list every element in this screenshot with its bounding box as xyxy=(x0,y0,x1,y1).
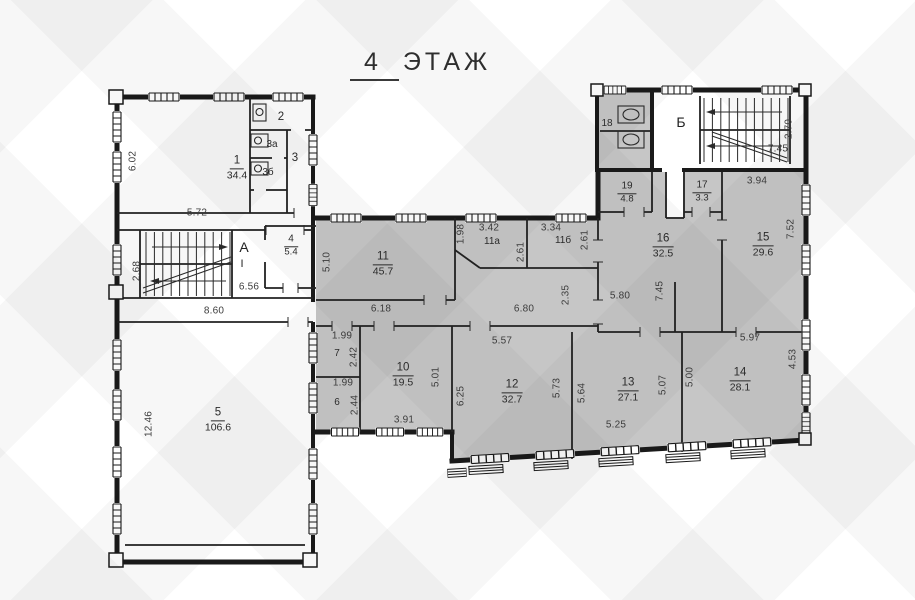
dim-label: 5.00 xyxy=(685,367,696,387)
dim-label: 5.25 xyxy=(606,420,626,431)
dim-label: 5.72 xyxy=(187,208,207,219)
dim-label: 7.45 xyxy=(768,144,788,155)
dim-label: 2.44 xyxy=(350,395,361,415)
dim-label: 2.68 xyxy=(132,261,143,281)
stair-a-label: А xyxy=(239,239,248,255)
dim-label: 3.42 xyxy=(479,223,499,234)
room-label-11a: 11а xyxy=(484,231,500,249)
room-label-18: 18 xyxy=(601,113,612,131)
room-label-6: 6 xyxy=(334,392,340,410)
room-label-10: 1019.5 xyxy=(393,357,414,388)
dim-label: 5.57 xyxy=(492,336,512,347)
dim-label: 6.02 xyxy=(128,151,139,171)
dim-label: 2.61 xyxy=(516,242,527,262)
stair-a-flight-mark: I xyxy=(240,258,243,270)
room-label-12: 1232.7 xyxy=(502,374,523,405)
floor-word: ЭТАЖ xyxy=(403,48,491,77)
dim-label: 5.97 xyxy=(740,333,760,344)
floor-number: 4 xyxy=(350,48,399,81)
dim-label: 5.01 xyxy=(431,367,442,387)
page-title: 4 ЭТАЖ xyxy=(350,48,491,81)
dim-label: 8.60 xyxy=(204,306,224,317)
dim-label: 2.42 xyxy=(349,347,360,367)
room-label-3a: 3а xyxy=(266,134,277,152)
stair-b-label: Б xyxy=(676,114,685,130)
dim-label: 2.61 xyxy=(580,230,591,250)
dim-label: 6.25 xyxy=(456,386,467,406)
dim-label: 3.34 xyxy=(541,223,561,234)
dim-label: 1.99 xyxy=(333,378,353,389)
room-label-13: 1327.1 xyxy=(618,372,639,403)
room-label-11: 1145.7 xyxy=(373,246,393,277)
dim-label: 7.45 xyxy=(655,281,666,301)
room-label-17: 173.3 xyxy=(692,174,711,203)
dim-label: 6.80 xyxy=(514,304,534,315)
dim-label: 6.56 xyxy=(239,282,259,293)
room-label-5: 5106.6 xyxy=(205,402,231,433)
room-label-1: 134.4 xyxy=(227,150,247,181)
dim-label: 5.80 xyxy=(610,291,630,302)
dim-label: 5.64 xyxy=(577,383,588,403)
dim-label: 1.98 xyxy=(456,224,467,244)
room-label-7: 7 xyxy=(334,343,340,361)
dim-label: 3.91 xyxy=(394,415,414,426)
room-label-14: 1428.1 xyxy=(730,362,751,393)
dim-label: 5.10 xyxy=(322,252,333,272)
floor-plan-page: 4 ЭТАЖ 134.4 2 3а 3б 3 45.4 5106.6 6 7 1… xyxy=(0,0,915,600)
dim-label: 2.35 xyxy=(561,285,572,305)
dim-label: 1.99 xyxy=(332,331,352,342)
dim-label: 7.52 xyxy=(786,219,797,239)
room-label-3b: 3б xyxy=(262,162,273,180)
room-label-3: 3 xyxy=(292,148,298,166)
room-label-15: 1529.6 xyxy=(753,227,774,258)
room-label-2: 2 xyxy=(278,107,284,125)
room-label-16: 1632.5 xyxy=(653,228,674,259)
dim-label: 2.70 xyxy=(784,119,795,139)
dim-label: 6.18 xyxy=(371,304,391,315)
dim-label: 12.46 xyxy=(144,411,155,437)
dim-label: 4.53 xyxy=(788,349,799,369)
room-label-19: 194.8 xyxy=(617,175,636,204)
dim-label: 3.94 xyxy=(747,176,767,187)
dim-label: 5.73 xyxy=(552,378,563,398)
room-label-4: 45.4 xyxy=(284,228,298,257)
plan-labels: 4 ЭТАЖ 134.4 2 3а 3б 3 45.4 5106.6 6 7 1… xyxy=(0,0,915,600)
dim-label: 5.07 xyxy=(658,375,669,395)
